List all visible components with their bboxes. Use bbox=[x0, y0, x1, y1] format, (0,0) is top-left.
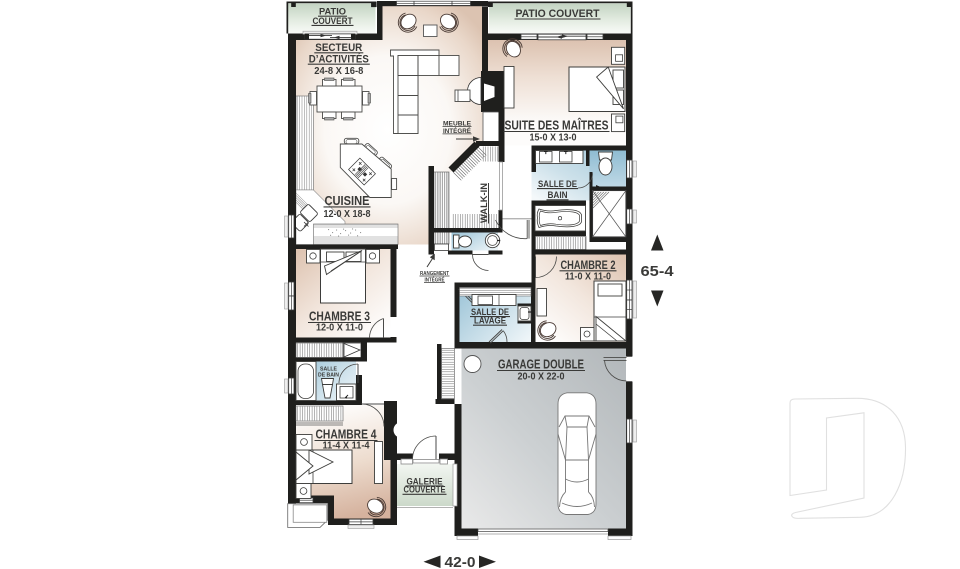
svg-text:65-4: 65-4 bbox=[641, 264, 675, 280]
svg-text:SALLE DE: SALLE DE bbox=[538, 178, 577, 189]
svg-text:COUVERTE: COUVERTE bbox=[404, 484, 446, 495]
svg-text:15-0 X 13-0: 15-0 X 13-0 bbox=[530, 133, 577, 144]
svg-text:COUVERT: COUVERT bbox=[313, 16, 353, 26]
svg-text:LAVAGE: LAVAGE bbox=[474, 315, 506, 326]
svg-text:SUITE DES MAÎTRES: SUITE DES MAÎTRES bbox=[505, 118, 609, 133]
svg-text:SECTEUR: SECTEUR bbox=[315, 42, 362, 54]
svg-text:CUISINE: CUISINE bbox=[325, 194, 370, 208]
svg-text:12-0 X 18-8: 12-0 X 18-8 bbox=[324, 209, 371, 220]
svg-text:CHAMBRE 3: CHAMBRE 3 bbox=[309, 310, 370, 324]
svg-text:12-0 X 11-0: 12-0 X 11-0 bbox=[316, 322, 363, 333]
svg-text:PATIO COUVERT: PATIO COUVERT bbox=[516, 8, 600, 20]
svg-text:11-4 X 11-4: 11-4 X 11-4 bbox=[323, 440, 370, 451]
svg-text:D’ACTIVITÉS: D’ACTIVITÉS bbox=[309, 52, 369, 65]
svg-text:24-8 X 16-8: 24-8 X 16-8 bbox=[314, 66, 363, 77]
svg-text:42-0: 42-0 bbox=[445, 555, 476, 569]
svg-text:INTÉGRÉ: INTÉGRÉ bbox=[443, 126, 472, 135]
svg-text:CHAMBRE 2: CHAMBRE 2 bbox=[561, 258, 616, 272]
svg-text:BAIN: BAIN bbox=[548, 189, 568, 200]
svg-text:20-0 X 22-0: 20-0 X 22-0 bbox=[518, 371, 565, 382]
svg-text:WALK-IN: WALK-IN bbox=[479, 183, 489, 223]
svg-text:GARAGE DOUBLE: GARAGE DOUBLE bbox=[498, 358, 584, 372]
svg-text:DE BAIN: DE BAIN bbox=[318, 373, 339, 379]
svg-text:11-0 X 11-0: 11-0 X 11-0 bbox=[565, 271, 611, 282]
